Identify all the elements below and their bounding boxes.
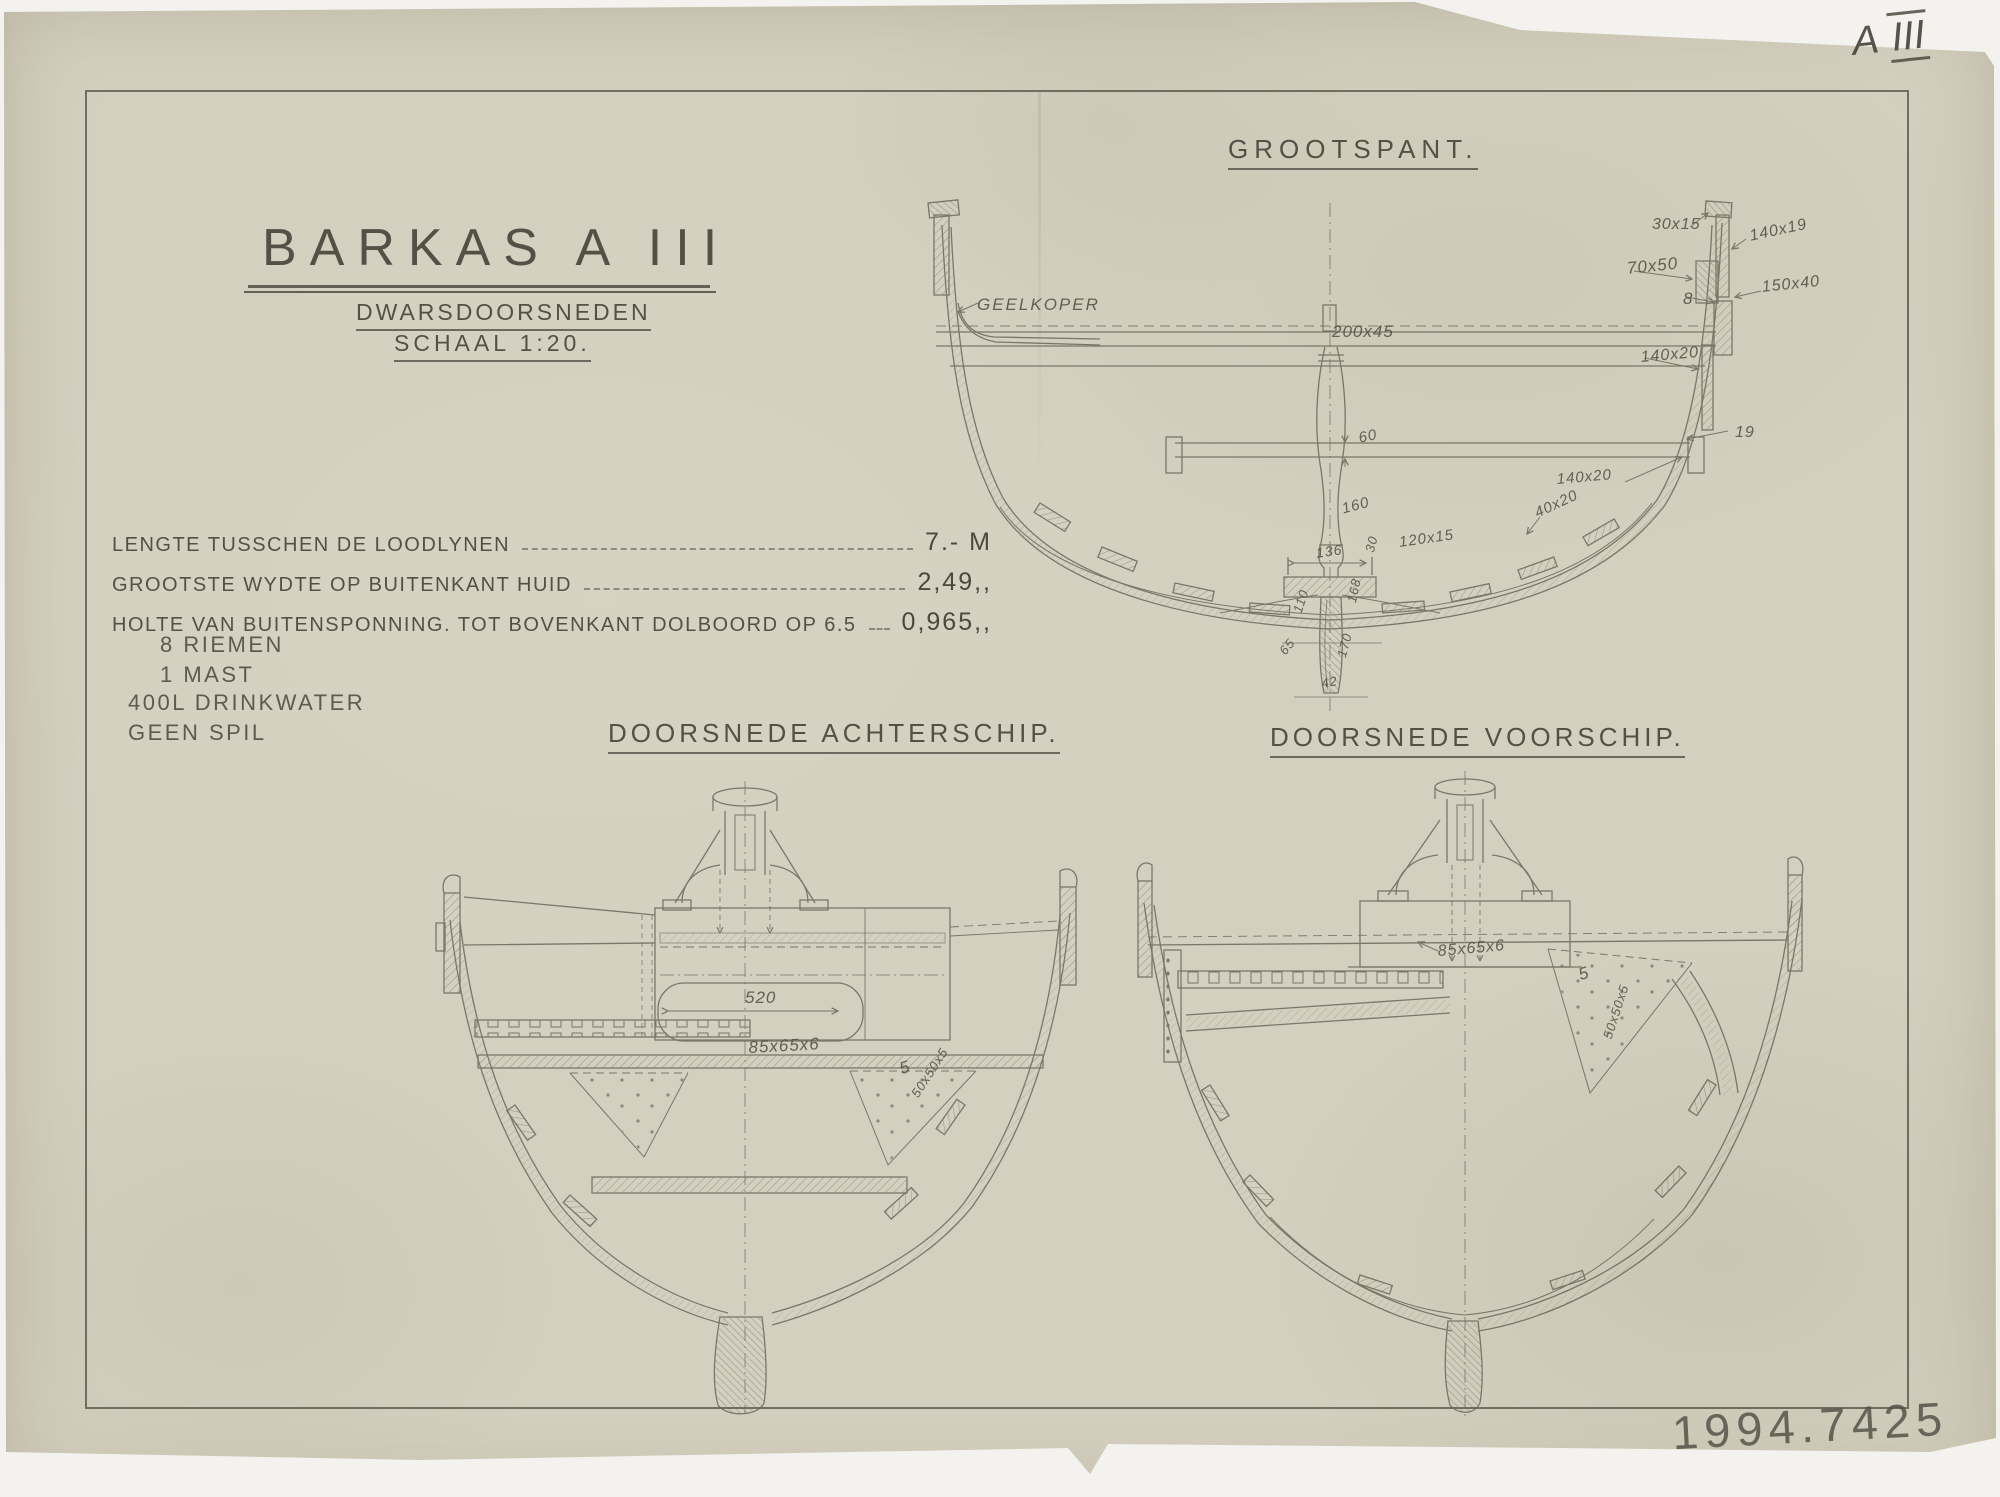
grootspant-title: GROOTSPANT. bbox=[1228, 134, 1478, 170]
sheet-title: BARKAS A III bbox=[262, 218, 730, 278]
spec-label: GROOTSTE WYDTE OP BUITENKANT HUID bbox=[112, 574, 572, 597]
grootspant-label-dim42: 42 bbox=[1320, 673, 1339, 691]
sheet-subtitle: DWARSDOORSNEDEN bbox=[356, 299, 651, 331]
spec-row-length: LENGTE TUSSCHEN DE LOODLYNEN 7.- M bbox=[112, 528, 992, 557]
achterschip-label-angle-bar: 85x65x6 bbox=[748, 1034, 820, 1058]
equip-riemen: 8 RIEMEN bbox=[160, 632, 284, 658]
grootspant-label-geelkoper: GEELKOPER bbox=[977, 295, 1100, 315]
spec-label: LENGTE TUSSCHEN DE LOODLYNEN bbox=[112, 534, 510, 557]
scanned-drawing-sheet: AIII BARKAS A III DWARSDOORSNEDEN SCHAAL… bbox=[0, 0, 2000, 1497]
corner-mark: AIII bbox=[1850, 12, 1930, 65]
grootspant-label-gunwale-cap: 30x15 bbox=[1652, 216, 1701, 234]
voorschip-title: DOORSNEDE VOORSCHIP. bbox=[1270, 722, 1685, 758]
equip-mast: 1 MAST bbox=[160, 662, 254, 688]
equip-drinkwater: 400L DRINKWATER bbox=[128, 690, 365, 716]
spec-leader bbox=[584, 587, 906, 590]
corner-mark-numeral: III bbox=[1886, 9, 1930, 63]
grootspant-label-plank19: 19 bbox=[1735, 424, 1755, 442]
achterschip-label-dim520: 520 bbox=[745, 988, 776, 1008]
title-rule-1 bbox=[248, 285, 710, 288]
equip-spil: GEEN SPIL bbox=[128, 720, 267, 746]
title-rule-2 bbox=[244, 291, 716, 293]
corner-mark-letter: A bbox=[1850, 17, 1881, 64]
spec-leader bbox=[522, 547, 913, 550]
grootspant-label-plank8: 8 bbox=[1683, 289, 1693, 309]
spec-row-beam: GROOTSTE WYDTE OP BUITENKANT HUID 2,49,, bbox=[112, 568, 992, 597]
achterschip-drawing bbox=[420, 775, 1100, 1420]
voorschip-drawing bbox=[1120, 765, 1820, 1425]
spec-leader bbox=[869, 627, 890, 630]
sheet-scale: SCHAAL 1:20. bbox=[394, 330, 591, 362]
grootspant-label-thwart: 200x45 bbox=[1332, 322, 1394, 342]
